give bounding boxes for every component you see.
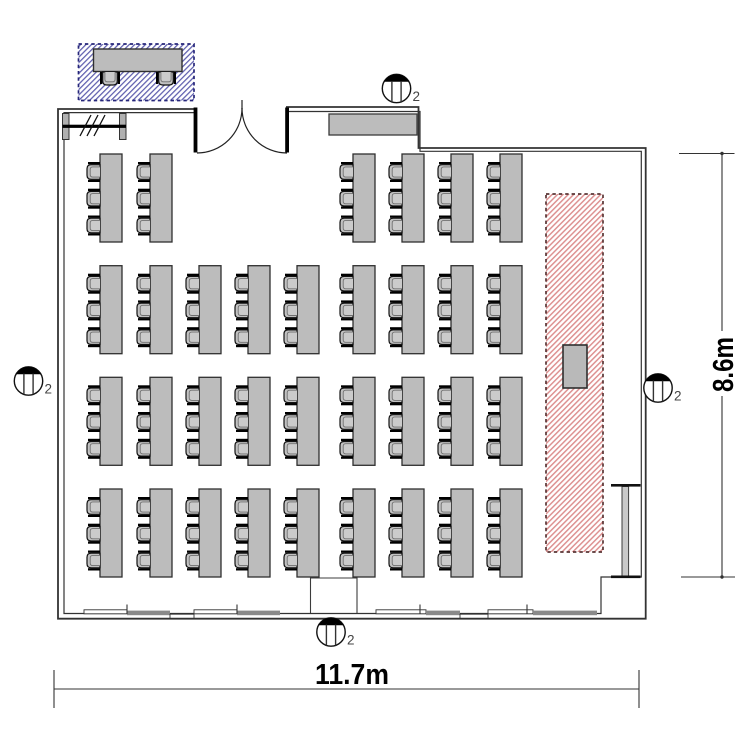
svg-text:2: 2: [45, 382, 53, 397]
svg-text:2: 2: [674, 389, 682, 404]
svg-text:8.6m: 8.6m: [708, 337, 740, 392]
svg-text:2: 2: [413, 89, 421, 104]
svg-text:2: 2: [347, 633, 355, 648]
svg-text:11.7m: 11.7m: [315, 659, 389, 691]
